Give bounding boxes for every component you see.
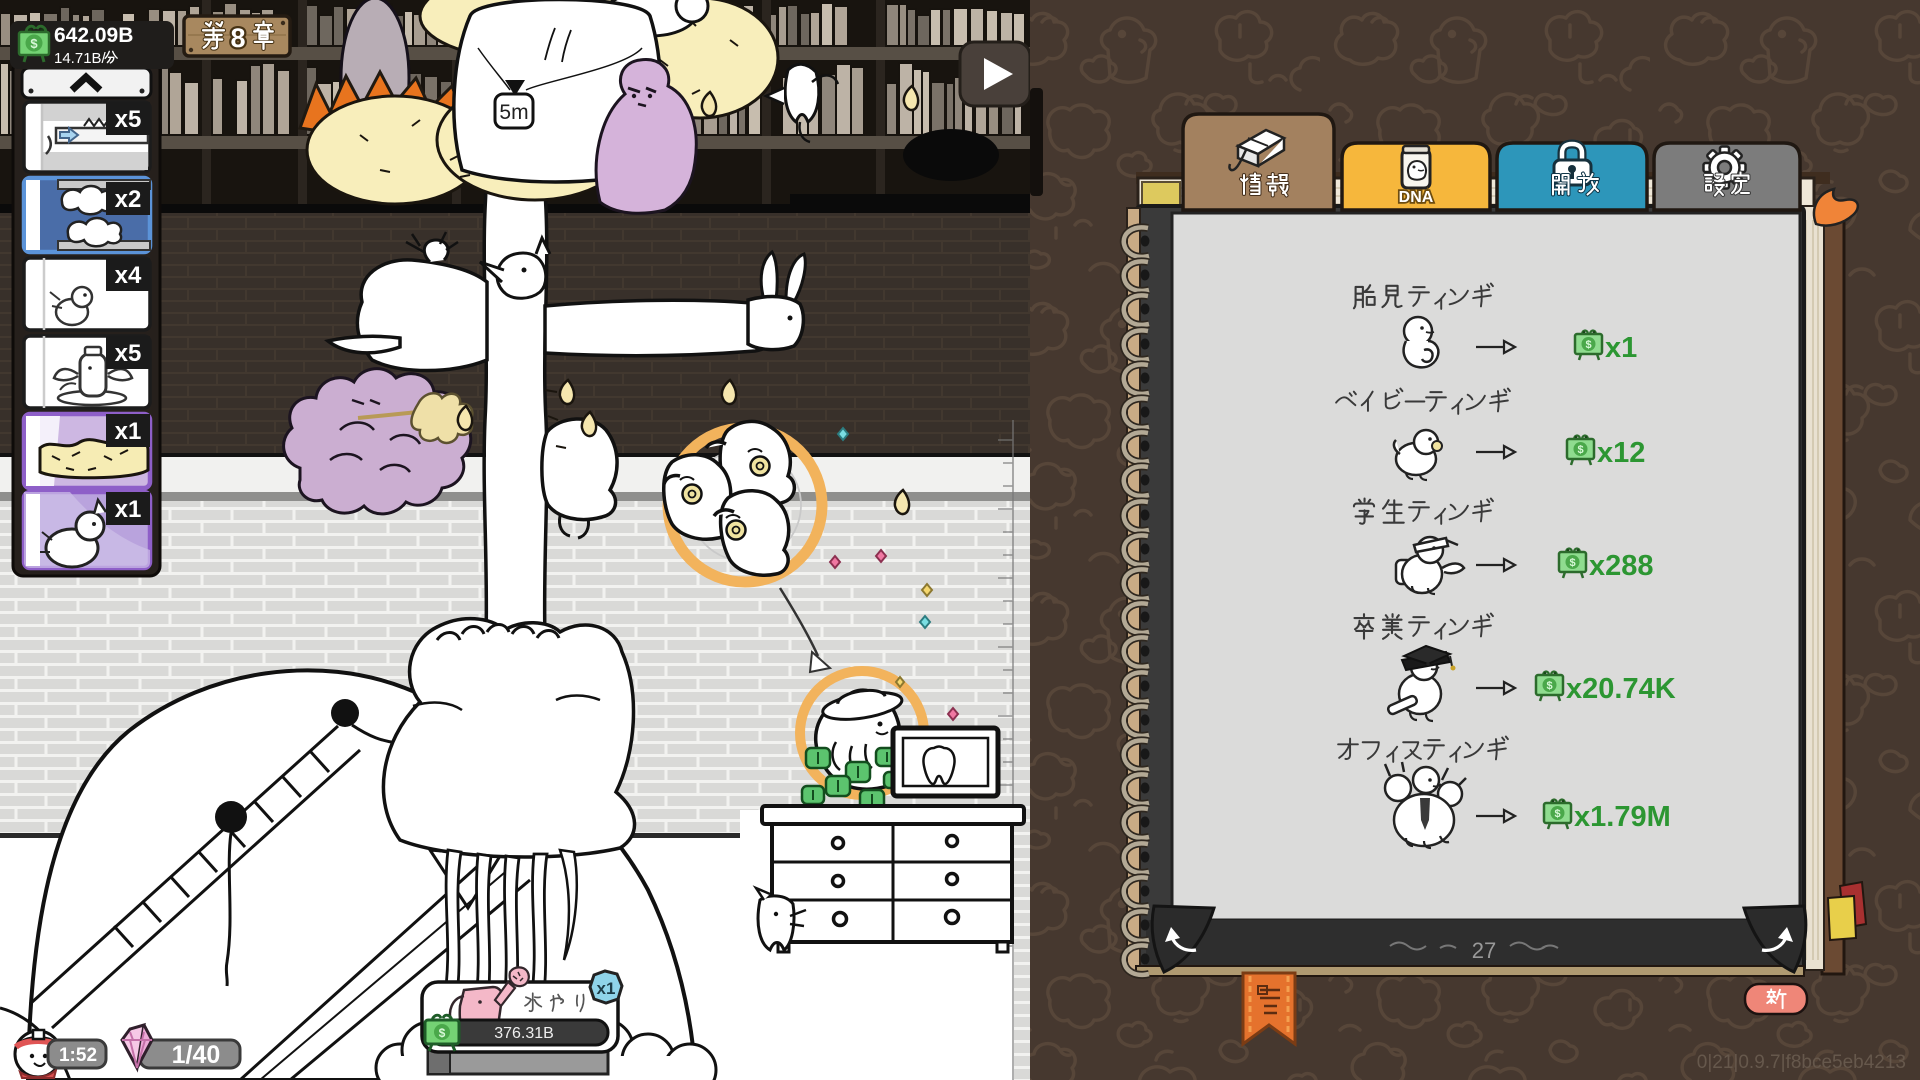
svg-text:$: $	[1554, 808, 1560, 820]
svg-text:x1: x1	[115, 496, 142, 523]
svg-text:1:52: 1:52	[59, 1045, 97, 1066]
svg-text:27: 27	[1472, 938, 1496, 963]
svg-text:x1.79M: x1.79M	[1574, 801, 1671, 833]
svg-text:x5: x5	[115, 106, 142, 133]
svg-text:376.31B: 376.31B	[494, 1025, 554, 1042]
svg-text:x288: x288	[1589, 550, 1654, 582]
svg-text:x1: x1	[597, 979, 616, 998]
svg-text:5m: 5m	[499, 101, 528, 124]
svg-text:$: $	[1569, 557, 1575, 569]
svg-text:1/40: 1/40	[172, 1041, 221, 1069]
svg-text:x4: x4	[115, 262, 142, 289]
svg-text:x1: x1	[1605, 332, 1637, 364]
svg-text:x2: x2	[115, 186, 142, 213]
svg-text:x5: x5	[115, 340, 142, 367]
svg-text:0|21|0.9.7|f8bce5eb4213: 0|21|0.9.7|f8bce5eb4213	[1697, 1052, 1906, 1073]
svg-text:$: $	[1546, 680, 1552, 692]
svg-text:14.71B/: 14.71B/	[54, 50, 107, 67]
svg-text:DNA: DNA	[1399, 189, 1434, 206]
svg-text:8: 8	[230, 23, 245, 53]
svg-text:x1: x1	[115, 418, 142, 445]
svg-text:$: $	[439, 1026, 446, 1040]
svg-text:$: $	[1577, 444, 1583, 456]
svg-text:$: $	[1585, 339, 1591, 351]
svg-text:x12: x12	[1597, 437, 1645, 469]
svg-text:x20.74K: x20.74K	[1566, 673, 1676, 705]
svg-text:642.09B: 642.09B	[54, 24, 133, 47]
svg-text:$: $	[30, 36, 38, 51]
